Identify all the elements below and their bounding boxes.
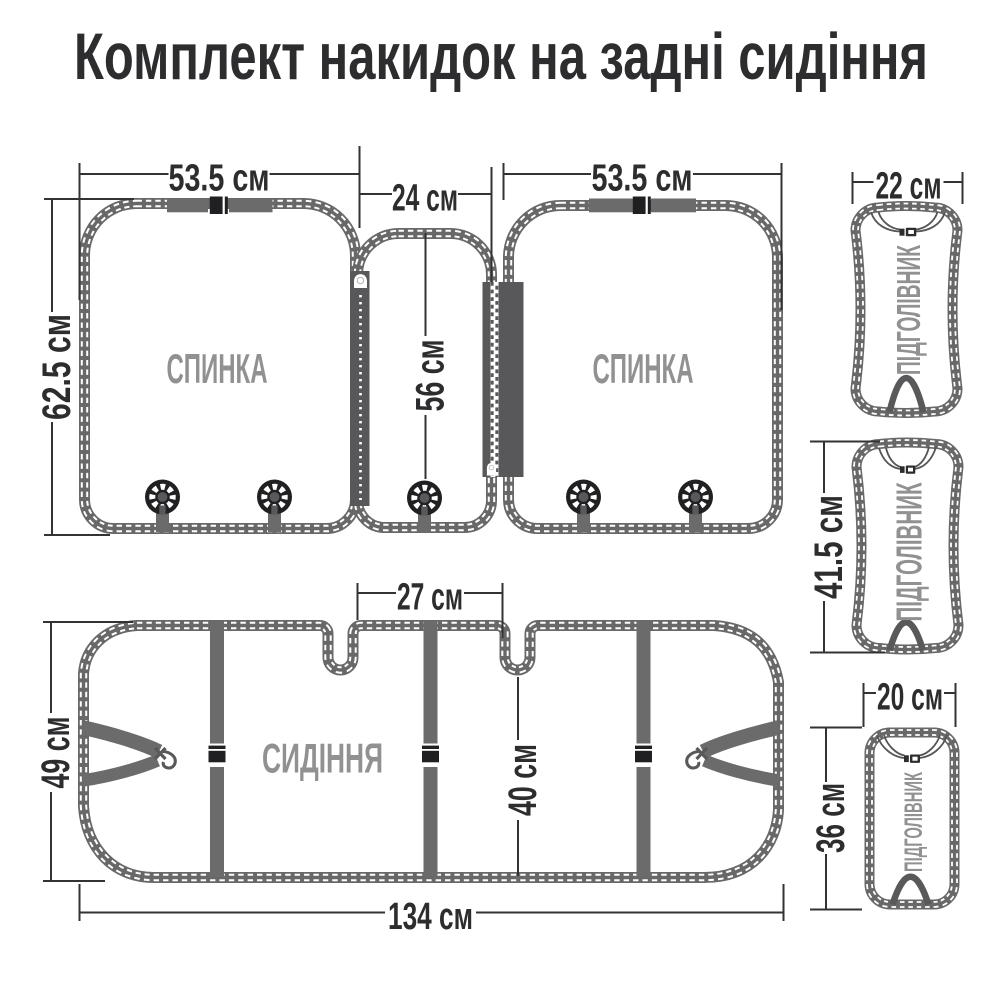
svg-text:53.5 см: 53.5 см bbox=[169, 158, 270, 200]
svg-text:24 см: 24 см bbox=[392, 178, 458, 220]
svg-text:ПІДГОЛІВНИК: ПІДГОЛІВНИК bbox=[890, 245, 927, 375]
svg-text:СИДІННЯ: СИДІННЯ bbox=[262, 735, 383, 782]
svg-text:134 см: 134 см bbox=[388, 896, 473, 938]
svg-text:22 см: 22 см bbox=[876, 166, 942, 208]
svg-text:СПИНКА: СПИНКА bbox=[593, 345, 694, 392]
svg-text:40 см: 40 см bbox=[501, 744, 545, 816]
svg-text:27 см: 27 см bbox=[397, 577, 463, 619]
svg-text:ПІДГОЛІВНИК: ПІДГОЛІВНИК bbox=[900, 772, 928, 872]
svg-text:Комплект накидок на задні сиді: Комплект накидок на задні сидіння bbox=[74, 19, 928, 93]
svg-text:ПІДГОЛІВНИК: ПІДГОЛІВНИК bbox=[889, 482, 930, 622]
svg-text:62.5 см: 62.5 см bbox=[35, 314, 79, 420]
svg-text:53.5 см: 53.5 см bbox=[592, 158, 693, 200]
svg-text:49 см: 49 см bbox=[34, 717, 78, 789]
svg-text:41.5 см: 41.5 см bbox=[807, 495, 851, 599]
svg-text:20 см: 20 см bbox=[877, 677, 943, 719]
svg-text:36 см: 36 см bbox=[809, 783, 853, 853]
svg-text:56 см: 56 см bbox=[409, 340, 453, 412]
svg-text:СПИНКА: СПИНКА bbox=[167, 345, 268, 392]
